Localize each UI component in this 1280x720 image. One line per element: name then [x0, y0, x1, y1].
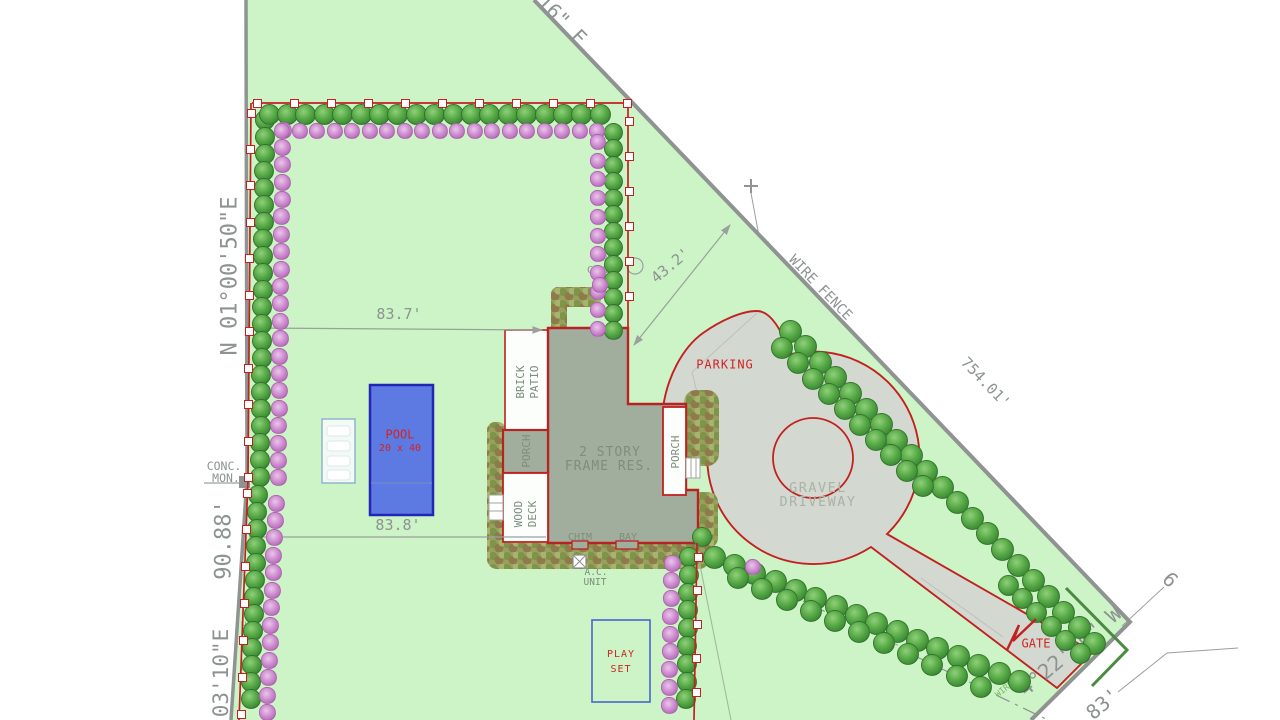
play-set-label-2: SET	[610, 665, 631, 676]
wood-deck-label-2: DECK	[527, 501, 539, 528]
gate-label: GATE	[1022, 638, 1051, 651]
play-set-label-1: PLAY	[607, 650, 635, 661]
house-label-2: FRAME RES.	[565, 460, 653, 474]
porch-right-label: PORCH	[670, 435, 682, 468]
pool-label-2: 20 x 40	[379, 444, 421, 455]
porch-left-label: PORCH	[521, 434, 533, 467]
house-label-1: 2 STORY	[579, 446, 641, 460]
site-plan: 16" E N 01°00'50"E 90.88' 03'10"E CONC. …	[0, 0, 1280, 720]
feature-text-layer: 2 STORY FRAME RES. BRICK PATIO PORCH POR…	[0, 0, 1280, 720]
bay-label: BAY	[619, 533, 637, 544]
chimney-label: CHIM	[568, 533, 592, 544]
wood-deck-label-1: WOOD	[513, 501, 525, 528]
pool-label-1: POOL	[386, 429, 415, 442]
parking-label: PARKING	[696, 359, 754, 372]
brick-patio-label-1: BRICK	[515, 365, 527, 398]
brick-patio-label-2: PATIO	[529, 365, 541, 398]
ac-unit-label-2: UNIT	[584, 578, 607, 588]
